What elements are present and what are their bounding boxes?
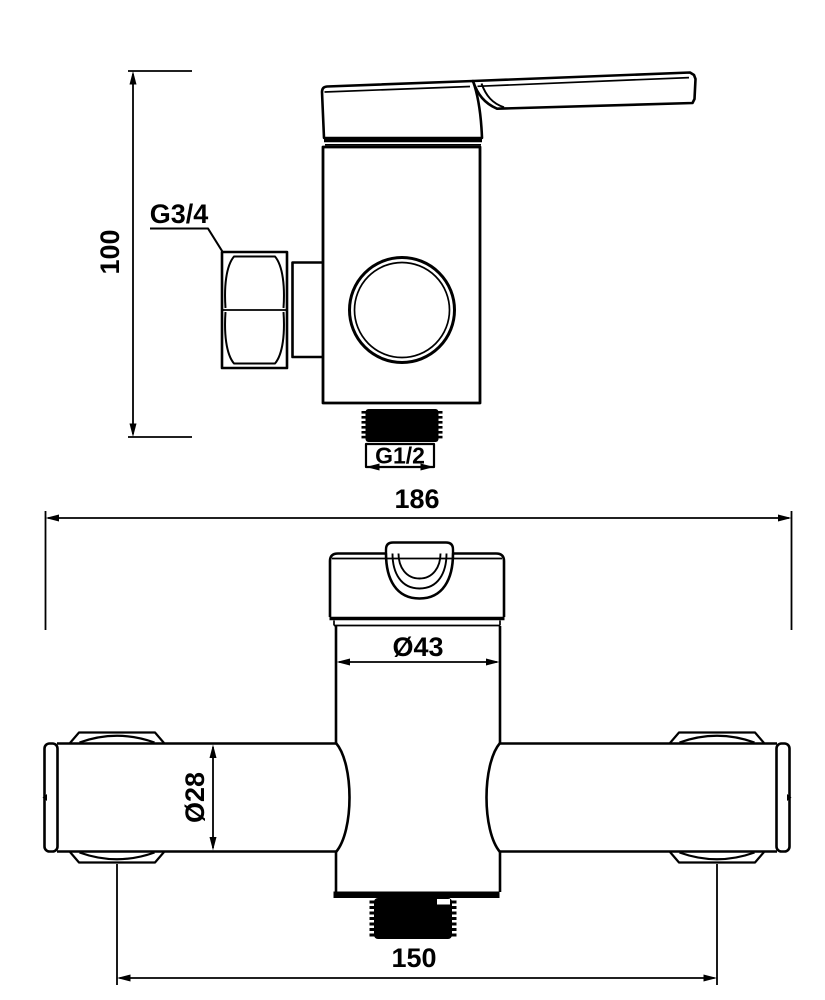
outlet-thread-size-box: G1/2 bbox=[366, 443, 434, 471]
flange-lower-arc bbox=[680, 853, 755, 860]
thread-body bbox=[366, 409, 439, 442]
outlet-thread-front bbox=[370, 898, 457, 939]
handle-lever bbox=[473, 73, 696, 109]
supply-connector bbox=[293, 263, 324, 358]
arrow-left-icon bbox=[46, 515, 60, 522]
body-diameter-label: Ø43 bbox=[392, 632, 443, 662]
flange-upper-arc bbox=[680, 736, 755, 743]
side-view: 100 G3/4 bbox=[95, 71, 696, 471]
body-column bbox=[334, 626, 501, 898]
front-view: 186 bbox=[43, 484, 792, 985]
leader-line bbox=[150, 229, 223, 253]
arrow-up-icon bbox=[130, 71, 137, 85]
flange-upper-arc bbox=[80, 736, 155, 743]
drawing-svg: 100 G3/4 bbox=[0, 0, 825, 1000]
lever-stub-u-inner bbox=[399, 554, 441, 579]
pipe-diameter-dimension: Ø28 bbox=[180, 745, 217, 851]
connection-centers-label: 150 bbox=[391, 943, 436, 973]
height-dimension: 100 bbox=[95, 71, 192, 437]
cap-outline-right bbox=[453, 554, 504, 618]
lever-stub-top bbox=[386, 543, 453, 555]
cap-front bbox=[330, 543, 505, 626]
waist-curve-left bbox=[336, 743, 350, 852]
flange-lower-arc bbox=[80, 853, 155, 860]
outlet-thread-label: G1/2 bbox=[375, 443, 425, 469]
inlet-thread-label: G3/4 bbox=[150, 199, 209, 229]
hex-nut bbox=[222, 252, 287, 368]
ring-band bbox=[334, 621, 500, 626]
arrow-left-icon bbox=[337, 659, 351, 666]
outlet-thread-side bbox=[362, 409, 443, 442]
arrow-down-icon bbox=[130, 424, 137, 438]
arrow-up-icon bbox=[210, 745, 217, 759]
arrow-left-icon bbox=[117, 975, 131, 982]
height-dimension-label: 100 bbox=[95, 229, 125, 274]
arrow-right-icon bbox=[704, 975, 718, 982]
left-escutcheon bbox=[70, 733, 164, 863]
valve-body bbox=[323, 147, 480, 403]
overall-width-label: 186 bbox=[394, 484, 439, 514]
pipe-diameter-label: Ø28 bbox=[180, 772, 210, 823]
arrow-down-icon bbox=[210, 837, 217, 851]
thread-highlight bbox=[437, 899, 450, 905]
arrow-right-icon bbox=[778, 515, 792, 522]
technical-drawing: 100 G3/4 bbox=[0, 0, 825, 1000]
arrow-right-icon bbox=[486, 659, 500, 666]
body-diameter-dimension: Ø43 bbox=[337, 632, 500, 666]
overall-width-dimension: 186 bbox=[46, 484, 792, 630]
base-edge bbox=[334, 892, 500, 899]
right-supply-pipe bbox=[500, 744, 792, 852]
waist-curve-right bbox=[487, 743, 501, 852]
lever-stub-u-outer bbox=[386, 554, 453, 599]
inlet-thread-callout: G3/4 bbox=[150, 199, 223, 253]
hex-facet-bottom bbox=[225, 312, 284, 364]
hex-facet-top bbox=[225, 257, 284, 309]
pipe-edges bbox=[500, 744, 777, 852]
cap-outline-left bbox=[330, 554, 386, 618]
right-escutcheon bbox=[670, 733, 764, 863]
